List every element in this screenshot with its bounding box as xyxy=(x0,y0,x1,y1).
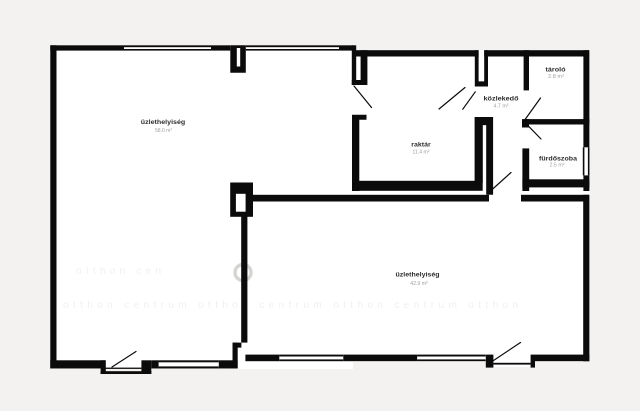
svg-text:raktár: raktár xyxy=(411,141,431,148)
svg-text:2.8 m²: 2.8 m² xyxy=(548,74,564,80)
svg-text:közlekedő: közlekedő xyxy=(484,95,519,102)
svg-text:2.5 m²: 2.5 m² xyxy=(550,162,565,168)
svg-text:tároló: tároló xyxy=(546,66,566,73)
svg-text:üzlethelyiség: üzlethelyiség xyxy=(396,271,440,278)
svg-text:58.0 m²: 58.0 m² xyxy=(155,128,172,134)
svg-text:11.4 m²: 11.4 m² xyxy=(413,149,430,155)
svg-text:42.9 m²: 42.9 m² xyxy=(410,281,428,287)
svg-text:üzlethelyiség: üzlethelyiség xyxy=(141,119,186,126)
svg-text:4.7 m²: 4.7 m² xyxy=(494,103,509,109)
svg-text:fürdőszoba: fürdőszoba xyxy=(539,155,577,162)
